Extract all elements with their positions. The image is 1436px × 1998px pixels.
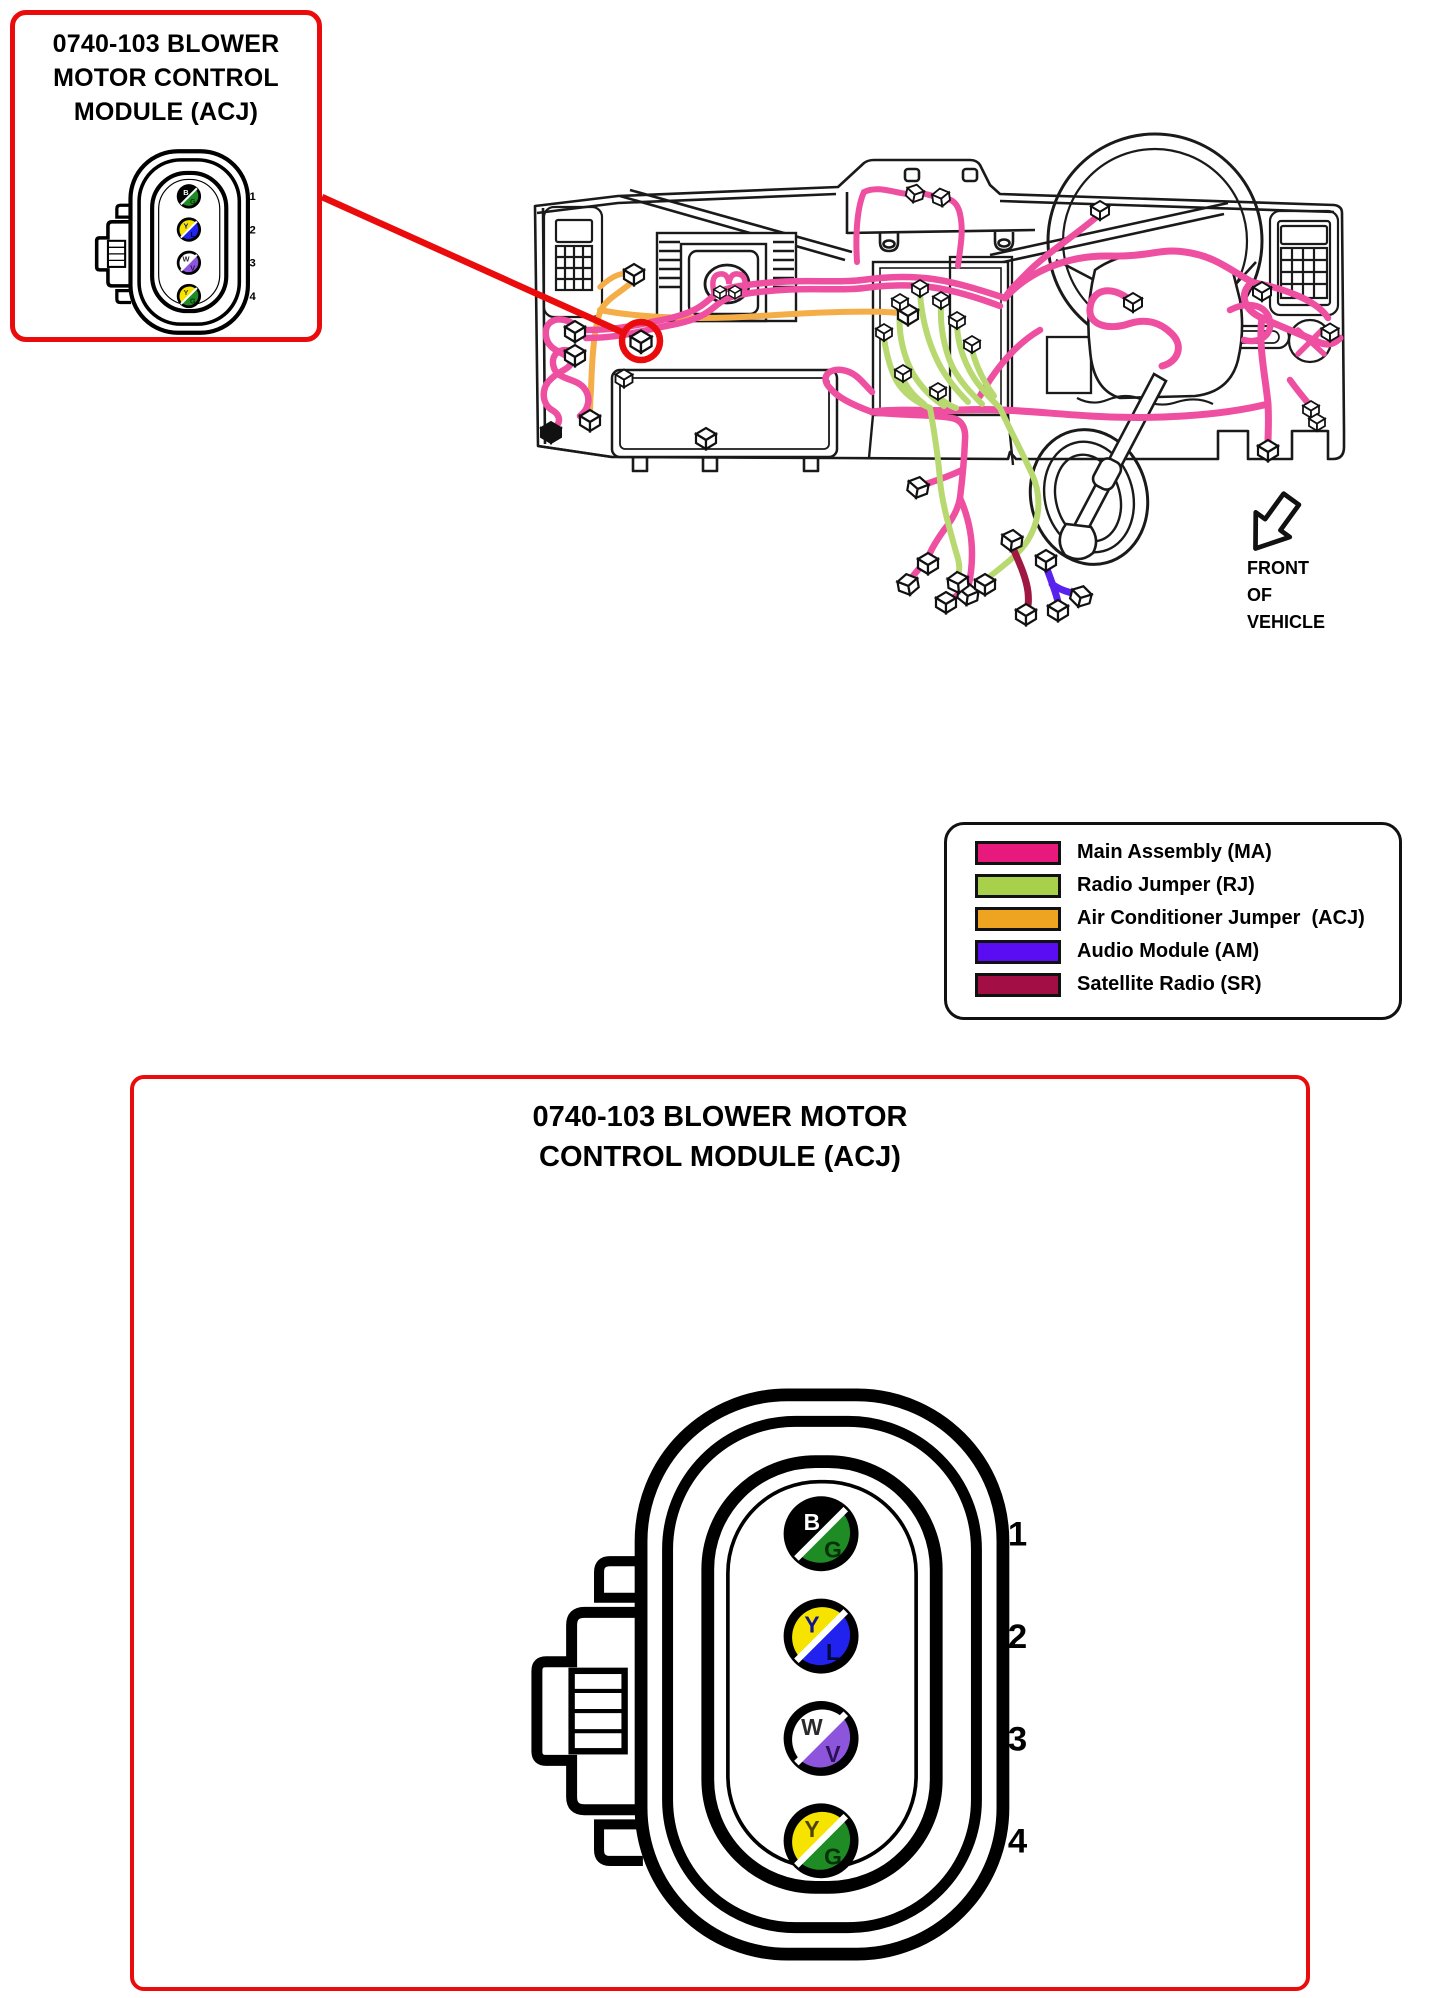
pin-top-letter: B	[804, 1509, 821, 1535]
callout-title-line: MODULE (ACJ)	[15, 95, 317, 129]
pin-bottom-letter: V	[190, 263, 195, 272]
connector-thumbnail: BG1YL2WV3YG4	[86, 147, 258, 337]
pin-number: 3	[1008, 1720, 1027, 1758]
wires-radio-jumper	[884, 294, 1038, 578]
callout-title: 0740-103 BLOWER MOTOR CONTROL MODULE (AC…	[15, 27, 317, 129]
pin-top-letter: W	[182, 255, 189, 264]
right-vent	[1270, 211, 1338, 315]
black-connector	[541, 422, 561, 443]
pin-number: 4	[1008, 1823, 1028, 1861]
pin-bottom-letter: G	[190, 297, 196, 306]
detail-title-line: 0740-103 BLOWER MOTOR	[134, 1097, 1306, 1137]
pin-top-letter: Y	[804, 1611, 819, 1637]
front-of-vehicle: FRONT OF VEHICLE	[1238, 487, 1325, 632]
legend-label: Air Conditioner Jumper (ACJ)	[1077, 907, 1365, 930]
pin-bottom-letter: V	[825, 1741, 841, 1767]
legend-swatch	[975, 940, 1061, 964]
legend-swatch	[975, 874, 1061, 898]
legend-swatch	[975, 907, 1061, 931]
pin-number: 1	[1008, 1516, 1027, 1554]
pin-bottom-letter: L	[190, 230, 195, 239]
pin-top-letter: Y	[183, 221, 188, 230]
radio-opening	[538, 370, 837, 457]
legend-label: Main Assembly (MA)	[1077, 841, 1272, 864]
legend-swatch	[975, 973, 1061, 997]
instrument-cluster	[657, 233, 796, 321]
legend-label: Satellite Radio (SR)	[1077, 973, 1261, 996]
red-circle-marker	[622, 322, 660, 360]
pin-top-letter: B	[183, 188, 189, 197]
wires-ac-jumper	[590, 274, 900, 414]
pin-bottom-letter: G	[190, 197, 196, 206]
pin-top-letter: Y	[804, 1816, 819, 1842]
detail-title: 0740-103 BLOWER MOTOR CONTROL MODULE (AC…	[134, 1097, 1306, 1177]
pin-top-letter: Y	[183, 288, 188, 297]
pin-number: 1	[250, 191, 256, 203]
pin-number: 2	[1008, 1618, 1027, 1656]
front-label-line: VEHICLE	[1247, 612, 1325, 632]
pin-top-letter: W	[801, 1714, 823, 1740]
callout-title-line: MOTOR CONTROL	[15, 61, 317, 95]
pin-number: 3	[250, 258, 256, 270]
left-vent	[544, 207, 602, 317]
harness-connectors	[541, 183, 1339, 625]
detail-box: 0740-103 BLOWER MOTOR CONTROL MODULE (AC…	[130, 1075, 1310, 1991]
callout-leader-line	[322, 197, 624, 333]
legend-item-ACJ: Air Conditioner Jumper (ACJ)	[975, 906, 1399, 931]
pin-bottom-letter: G	[824, 1844, 842, 1870]
detail-title-line: CONTROL MODULE (ACJ)	[134, 1137, 1306, 1177]
wiring-diagram-page: { "page": {"background": "#ffffff"}, "ca…	[0, 0, 1436, 1998]
legend-item-MA: Main Assembly (MA)	[975, 840, 1399, 865]
legend-box: Main Assembly (MA)Radio Jumper (RJ)Air C…	[944, 822, 1402, 1020]
front-label-line: FRONT	[1247, 558, 1309, 578]
callout-box: 0740-103 BLOWER MOTOR CONTROL MODULE (AC…	[10, 10, 322, 342]
wire-audio-module	[1046, 566, 1076, 602]
front-label-line: OF	[1247, 585, 1272, 605]
dashboard-body	[535, 160, 1344, 471]
center-stack	[869, 262, 1013, 465]
wire-satellite-radio	[1012, 546, 1028, 610]
steering-column	[1015, 374, 1166, 578]
pin-number: 4	[250, 291, 257, 303]
legend-rows: Main Assembly (MA)Radio Jumper (RJ)Air C…	[975, 840, 1399, 997]
target-connector-marker	[622, 322, 660, 360]
wires-main-assembly	[544, 189, 1340, 600]
legend-item-SR: Satellite Radio (SR)	[975, 972, 1399, 997]
front-of-vehicle-arrow-icon	[1238, 487, 1308, 561]
connector-pinout: BG1YL2WV3YG4	[504, 1382, 1034, 1967]
steering-panel-details	[950, 257, 1331, 412]
callout-title-line: 0740-103 BLOWER	[15, 27, 317, 61]
steering-wheel	[1048, 134, 1262, 405]
pin-number: 2	[250, 224, 256, 236]
legend-label: Radio Jumper (RJ)	[1077, 874, 1255, 897]
legend-item-RJ: Radio Jumper (RJ)	[975, 873, 1399, 898]
pin-bottom-letter: L	[826, 1639, 840, 1665]
legend-swatch	[975, 841, 1061, 865]
pin-bottom-letter: G	[824, 1537, 842, 1563]
legend-item-AM: Audio Module (AM)	[975, 939, 1399, 964]
legend-label: Audio Module (AM)	[1077, 940, 1259, 963]
